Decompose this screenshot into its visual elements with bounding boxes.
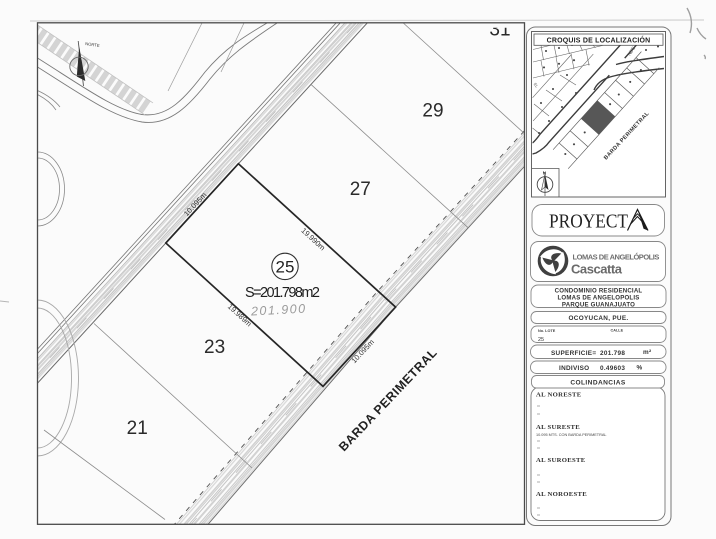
- svg-text:LOMAS DE ANGELÓPOLIS: LOMAS DE ANGELÓPOLIS: [573, 253, 660, 262]
- svg-text:S=201.798m2: S=201.798m2: [245, 285, 320, 301]
- svg-text:AL SURESTE: AL SURESTE: [536, 424, 580, 431]
- svg-text:COLINDANCIAS: COLINDANCIAS: [570, 380, 626, 387]
- svg-text:PROYECT: PROYECT: [549, 211, 628, 233]
- svg-text:PARQUE GUANAJUATO: PARQUE GUANAJUATO: [562, 301, 635, 308]
- svg-text:CONDOMINIO RESIDENCIAL: CONDOMINIO RESIDENCIAL: [555, 287, 643, 294]
- svg-text:SUPERFICIE=: SUPERFICIE=: [551, 350, 596, 357]
- svg-text:0.49603: 0.49603: [600, 365, 625, 372]
- svg-text:INDIVISO: INDIVISO: [559, 365, 589, 372]
- svg-text:25: 25: [538, 337, 544, 343]
- svg-text:CROQUIS DE LOCALIZACIÓN: CROQUIS DE LOCALIZACIÓN: [547, 35, 651, 44]
- svg-text:27: 27: [350, 179, 371, 200]
- svg-text:201.798: 201.798: [600, 350, 625, 357]
- svg-text:m²: m²: [643, 349, 651, 356]
- svg-text:AL SUROESTE: AL SUROESTE: [536, 457, 586, 464]
- svg-text:201.900: 201.900: [250, 302, 307, 319]
- svg-text:OCOYUCAN, PUE.: OCOYUCAN, PUE.: [569, 315, 629, 322]
- svg-text:10.095 MTS. CON BARDA PERIMETR: 10.095 MTS. CON BARDA PERIMETRAL: [536, 433, 606, 437]
- svg-text:AL NORESTE: AL NORESTE: [536, 392, 582, 399]
- svg-text:23: 23: [204, 337, 225, 358]
- svg-text:CALLE: CALLE: [611, 328, 624, 332]
- svg-text:%: %: [637, 365, 643, 372]
- svg-text:N: N: [543, 171, 546, 176]
- svg-text:25: 25: [276, 258, 295, 277]
- svg-text:No. LOTE: No. LOTE: [538, 329, 556, 333]
- svg-text:Cascatta: Cascatta: [571, 262, 623, 277]
- svg-text:29: 29: [422, 101, 443, 122]
- svg-text:LOMAS DE ANGELOPOLIS: LOMAS DE ANGELOPOLIS: [558, 294, 640, 301]
- svg-text:AL NOROESTE: AL NOROESTE: [536, 491, 587, 498]
- svg-text:21: 21: [127, 418, 148, 439]
